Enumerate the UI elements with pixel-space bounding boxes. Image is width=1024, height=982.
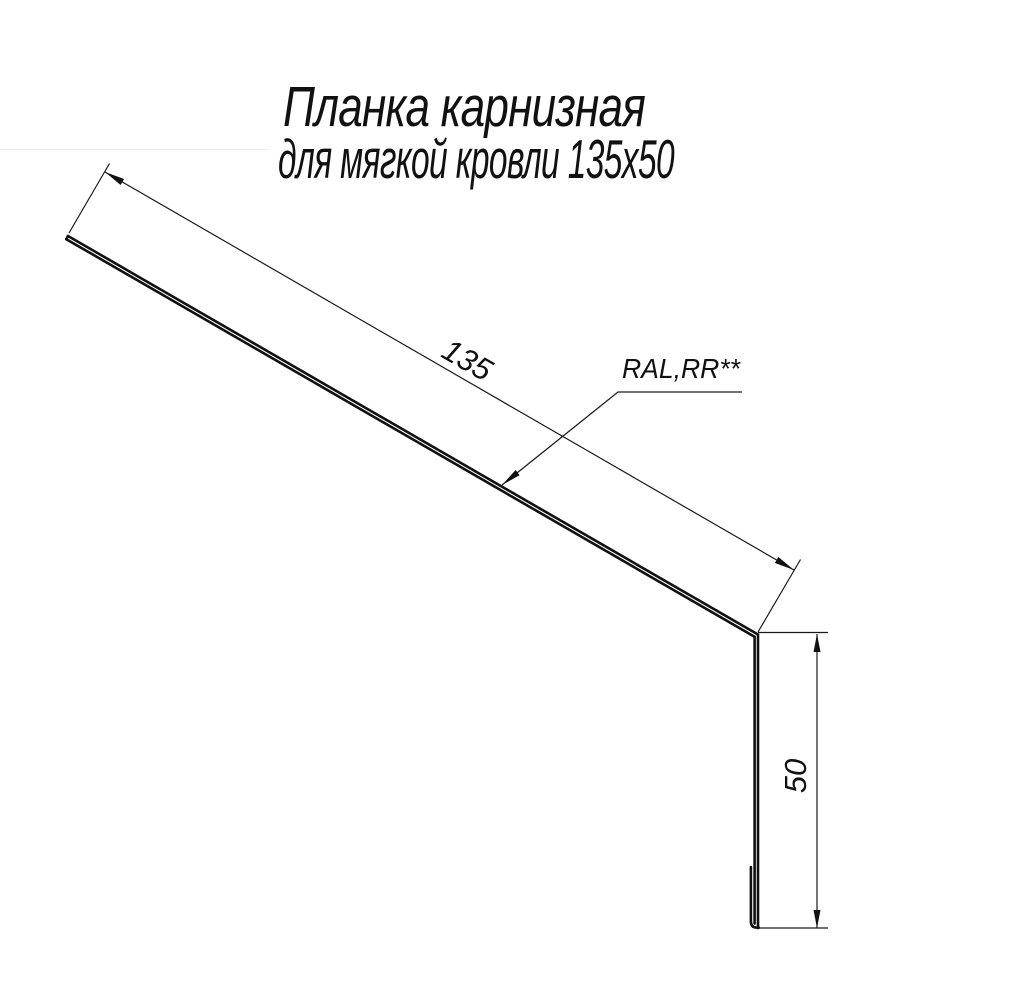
drawing-title: Планка карнизная для мягкой кровли 135х5…	[278, 75, 675, 190]
dim-50-value: 50	[778, 759, 813, 793]
dim-50-arrowhead-top	[814, 634, 821, 652]
leader-label-coating: RAL,RR**	[622, 353, 741, 384]
drawing-title-line2: для мягкой кровли 135х50	[278, 128, 675, 190]
dimension-50: 50	[758, 633, 828, 929]
leader-arrowhead	[502, 470, 520, 485]
profile-inner-face-line	[66, 239, 754, 923]
dim-135-arrowhead-right	[775, 557, 794, 570]
profile-outer-face-line	[68, 236, 758, 928]
dim-50-arrowhead-bottom	[814, 910, 821, 928]
dim-135-extension-line-left	[69, 164, 110, 234]
profile-left-end-cap	[66, 236, 68, 239]
dim-135-extension-line-right	[758, 560, 801, 633]
leader-callout-coating: RAL,RR**	[502, 353, 742, 485]
dimension-135: 135	[69, 164, 801, 633]
eaves-strip-drawing: Планка карнизная для мягкой кровли 135х5…	[0, 0, 1024, 982]
dim-135-value: 135	[436, 332, 499, 389]
dim-135-arrowhead-left	[105, 172, 124, 185]
profile-outline	[66, 236, 759, 928]
technical-drawing-page: Планка карнизная для мягкой кровли 135х5…	[0, 0, 1024, 982]
